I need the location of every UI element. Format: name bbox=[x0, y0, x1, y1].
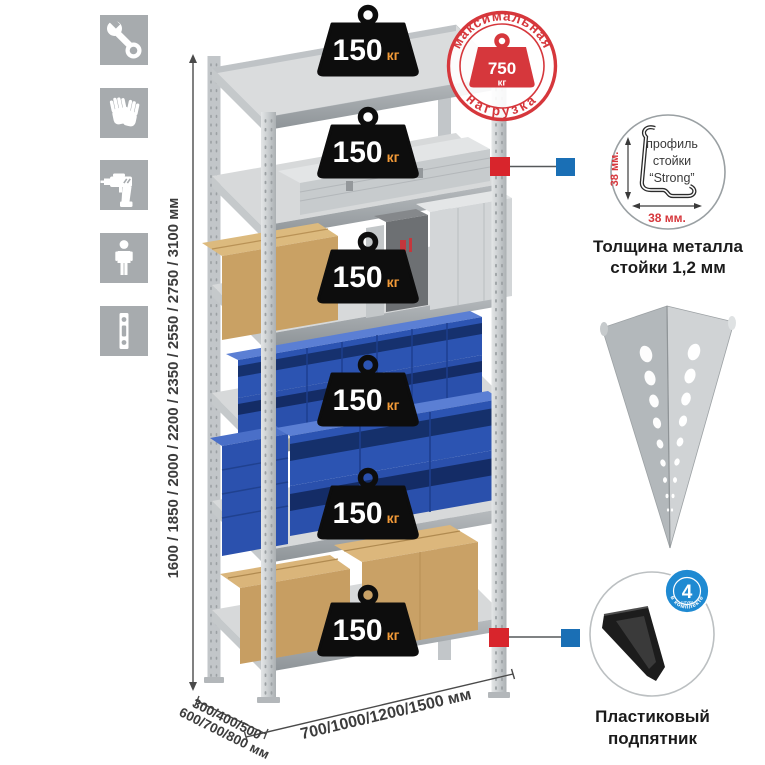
weight-150kg: 150кг bbox=[319, 8, 418, 76]
foot-plate bbox=[488, 692, 510, 698]
svg-text:1600 / 1850 / 2000 / 2200 / 23: 1600 / 1850 / 2000 / 2200 / 2350 / 2550 … bbox=[165, 198, 182, 579]
max-load-stamp: максимальная нагрузка 750 кг bbox=[449, 8, 556, 119]
svg-text:700/1000/1200/1500 мм: 700/1000/1200/1500 мм bbox=[299, 686, 473, 743]
scene: 150кг 150кг 150кг 150кг 150кг bbox=[0, 0, 765, 765]
marker-red-bottom bbox=[489, 628, 509, 647]
svg-text:кг: кг bbox=[498, 78, 507, 89]
marker-red-top bbox=[490, 157, 510, 176]
profile-label: профиль стойки “Strong” bbox=[646, 137, 698, 185]
weight-150kg: 150кг bbox=[319, 110, 418, 178]
marker-blue-top bbox=[556, 158, 575, 176]
foot-callout: 4 штуки в комплекте bbox=[590, 569, 714, 696]
marker-blue-bottom bbox=[561, 629, 580, 647]
svg-text:750: 750 bbox=[488, 59, 516, 78]
foot-plate bbox=[204, 677, 224, 683]
profile-caption: Толщина металла стойки 1,2 мм bbox=[578, 236, 758, 278]
width-dimension: 700/1000/1200/1500 мм bbox=[245, 669, 515, 743]
svg-text:“Strong”: “Strong” bbox=[649, 171, 694, 185]
post-back-left bbox=[208, 56, 221, 682]
svg-text:профиль: профиль bbox=[646, 137, 698, 151]
svg-text:стойки: стойки bbox=[653, 154, 691, 168]
quantity-badge: 4 штуки в комплекте bbox=[665, 569, 709, 613]
profile-callout: 38 мм. 38 мм. профиль стойки “Strong” bbox=[609, 115, 725, 229]
post-front-left bbox=[261, 112, 276, 702]
svg-text:38 мм.: 38 мм. bbox=[609, 152, 621, 187]
foot-plate bbox=[257, 697, 280, 703]
svg-text:38 мм.: 38 мм. bbox=[648, 211, 686, 225]
svg-text:штуки: штуки bbox=[681, 600, 693, 605]
shelving-infographic: 150кг 150кг 150кг 150кг 150кг bbox=[0, 0, 765, 765]
angle-post-image bbox=[600, 306, 736, 548]
height-dimension: 1600 / 1850 / 2000 / 2200 / 2350 / 2550 … bbox=[165, 54, 197, 691]
foot-caption: Пластиковый подпятник bbox=[570, 706, 735, 750]
